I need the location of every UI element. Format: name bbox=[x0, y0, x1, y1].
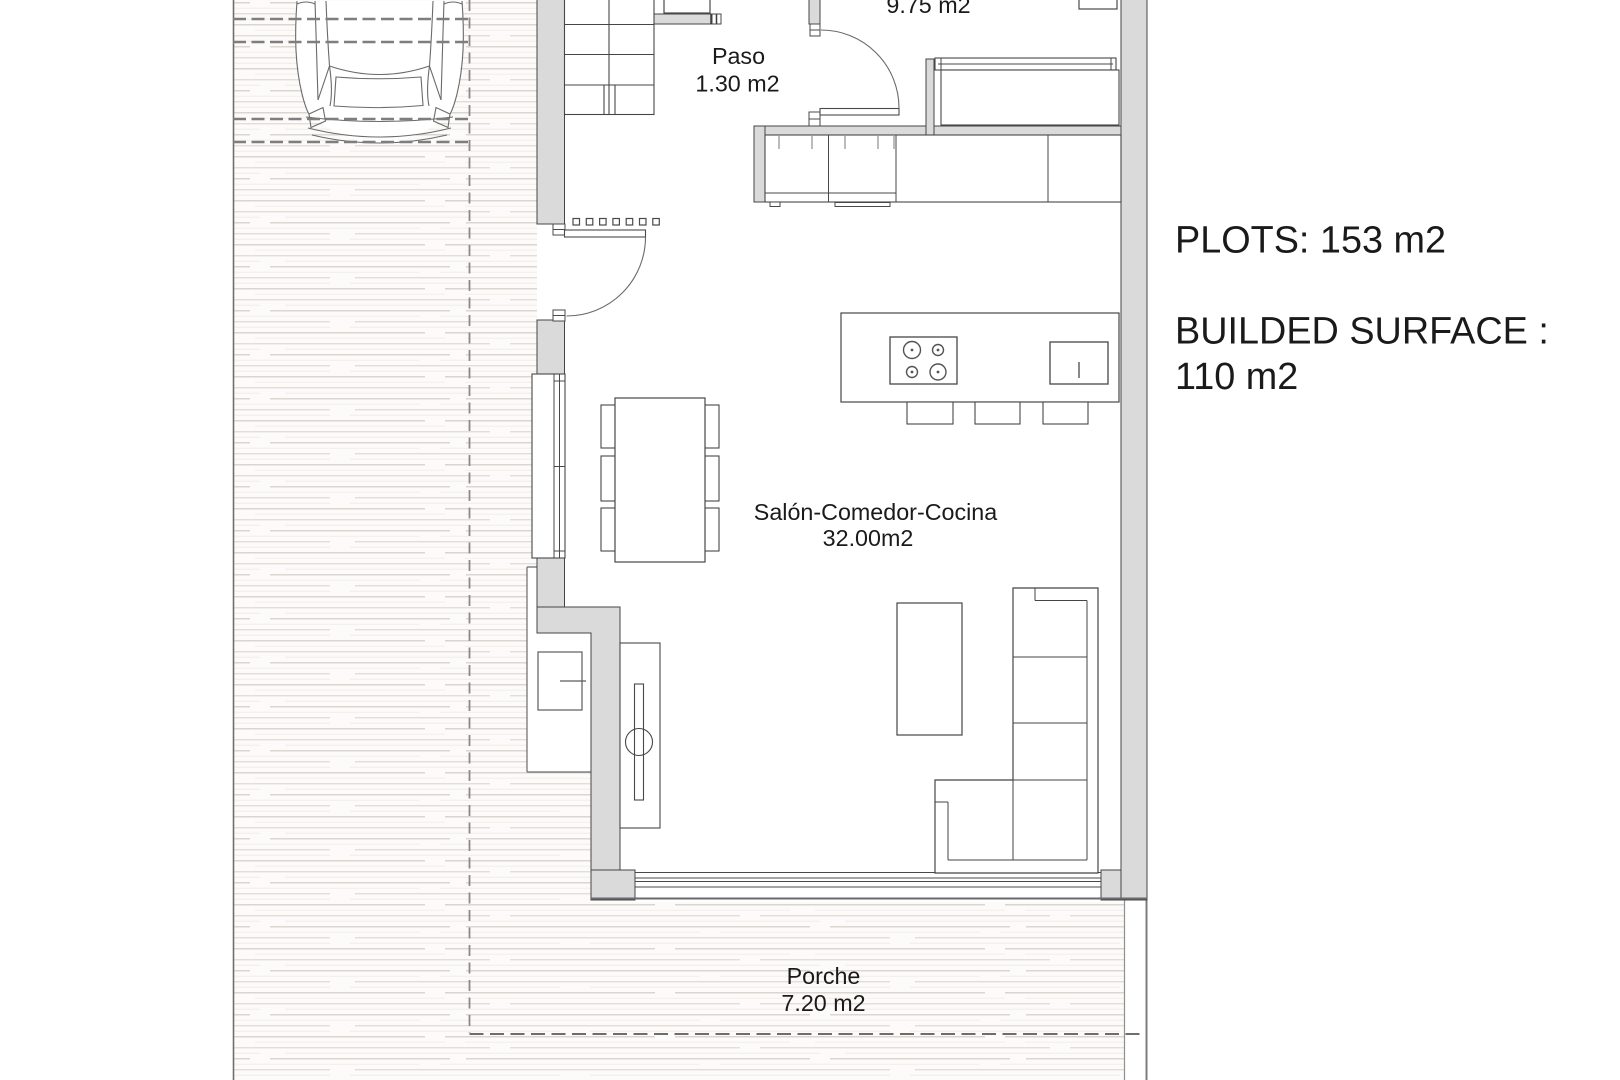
svg-text:32.00m2: 32.00m2 bbox=[823, 525, 914, 551]
svg-text:1.30 m2: 1.30 m2 bbox=[695, 71, 779, 97]
svg-text:Salón-Comedor-Cocina: Salón-Comedor-Cocina bbox=[754, 499, 997, 525]
svg-text:PLOTS: 153 m2: PLOTS: 153 m2 bbox=[1175, 220, 1446, 262]
svg-text:Paso: Paso bbox=[712, 43, 765, 69]
svg-text:110 m2: 110 m2 bbox=[1175, 356, 1298, 398]
svg-text:BUILDED SURFACE :: BUILDED SURFACE : bbox=[1175, 311, 1549, 353]
svg-text:9.75 m2: 9.75 m2 bbox=[886, 0, 970, 18]
svg-text:Porche: Porche bbox=[787, 963, 861, 989]
svg-text:7.20 m2: 7.20 m2 bbox=[781, 990, 865, 1016]
